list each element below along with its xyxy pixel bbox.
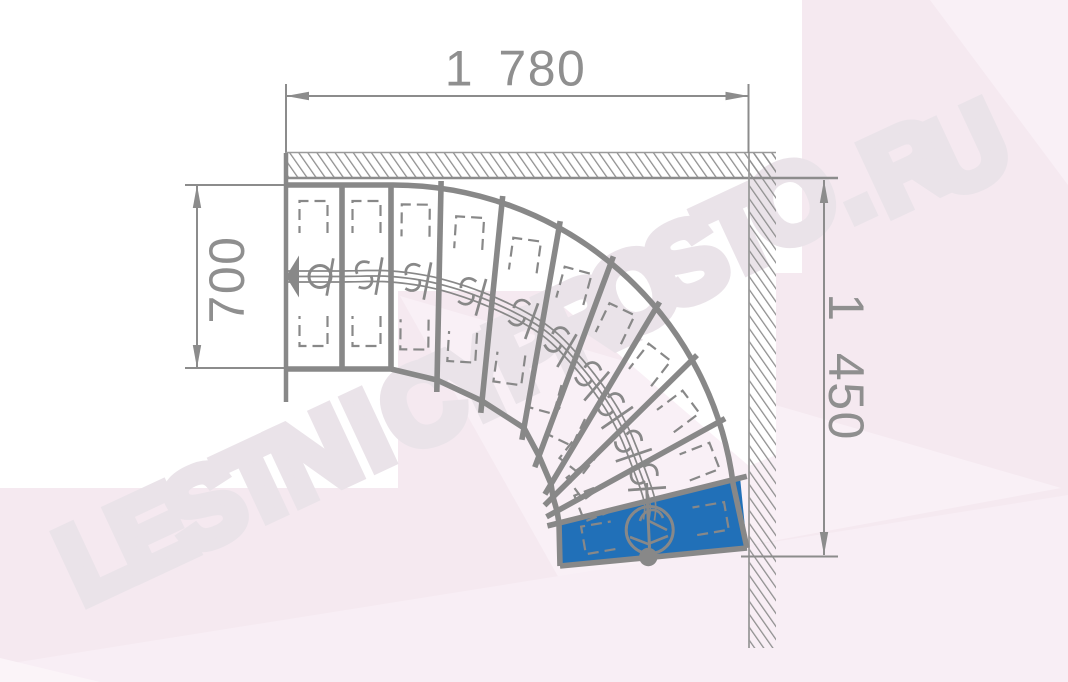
svg-text:700: 700 bbox=[199, 236, 255, 324]
svg-text:1 450: 1 450 bbox=[818, 293, 874, 441]
svg-text:1 780: 1 780 bbox=[445, 41, 587, 97]
